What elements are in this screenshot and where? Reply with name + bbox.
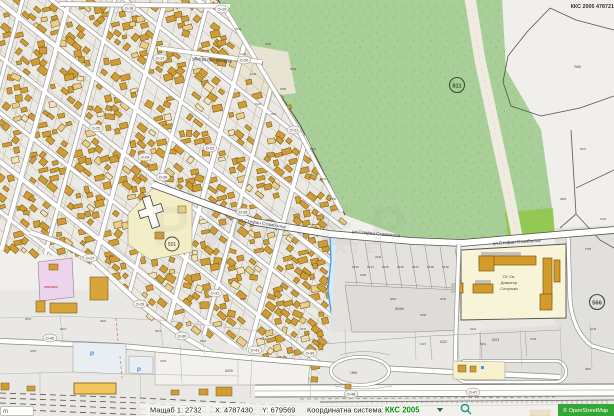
svg-text:4253: 4253 xyxy=(30,349,37,353)
svg-text:1107: 1107 xyxy=(420,342,426,346)
svg-text:О-25: О-25 xyxy=(92,125,101,130)
svg-text:О-26: О-26 xyxy=(159,174,168,179)
svg-text:5458: 5458 xyxy=(420,313,427,317)
svg-text:6216: 6216 xyxy=(397,265,404,269)
svg-text:X: 4787430: X: 4787430 xyxy=(215,406,253,415)
svg-text:гимназия: гимназия xyxy=(44,285,58,289)
svg-text:О-22: О-22 xyxy=(206,145,215,150)
svg-text:О-42: О-42 xyxy=(46,335,55,340)
svg-text:О-20: О-20 xyxy=(240,57,249,62)
svg-text:5842: 5842 xyxy=(320,177,327,181)
svg-text:4194: 4194 xyxy=(270,112,277,116)
svg-text:6125: 6125 xyxy=(600,217,607,221)
svg-text:О-27: О-27 xyxy=(86,255,95,260)
svg-text:О-24: О-24 xyxy=(141,154,150,159)
svg-text:2305: 2305 xyxy=(310,147,317,151)
svg-text:АТЕ: АТЕ xyxy=(335,240,382,257)
svg-text:© OpenStreetMap: © OpenStreetMap xyxy=(563,407,608,414)
svg-text:2242: 2242 xyxy=(250,72,257,76)
svg-text:О-21: О-21 xyxy=(290,127,299,132)
svg-text:6219: 6219 xyxy=(442,265,449,269)
svg-text:m: m xyxy=(3,409,8,415)
svg-text:ОУ Св.: ОУ Св. xyxy=(503,274,516,279)
svg-text:P: P xyxy=(90,352,94,358)
svg-text:4883: 4883 xyxy=(560,197,567,201)
svg-text:566: 566 xyxy=(592,301,602,307)
svg-text:6215: 6215 xyxy=(382,265,389,269)
svg-text:5512: 5512 xyxy=(155,329,162,333)
svg-text:Координатна система:: Координатна система: xyxy=(307,406,384,415)
svg-text:Солунски: Солунски xyxy=(500,286,518,291)
svg-text:6500: 6500 xyxy=(290,67,297,71)
svg-text:4030: 4030 xyxy=(440,297,447,301)
svg-text:5431: 5431 xyxy=(470,327,477,331)
svg-text:1969: 1969 xyxy=(350,371,357,375)
svg-text:2068: 2068 xyxy=(360,273,367,277)
svg-text:О-29: О-29 xyxy=(136,301,145,306)
svg-text:Димитър: Димитър xyxy=(501,280,518,285)
svg-text:О-30: О-30 xyxy=(178,333,187,338)
svg-text:6235: 6235 xyxy=(590,327,597,331)
svg-text:5502: 5502 xyxy=(200,339,207,343)
svg-text:3124: 3124 xyxy=(260,337,267,341)
svg-text:О-48: О-48 xyxy=(347,391,356,396)
svg-text:788: 788 xyxy=(574,64,581,69)
svg-text:4843: 4843 xyxy=(300,327,307,331)
svg-text:ККС 2005: ККС 2005 xyxy=(385,406,420,415)
svg-text:P: P xyxy=(137,368,141,374)
svg-text:ККС 2005 478721: ККС 2005 478721 xyxy=(571,4,614,10)
svg-text:2919: 2919 xyxy=(60,327,67,331)
svg-text:Y: 679569: Y: 679569 xyxy=(262,406,295,415)
svg-text:О-39: О-39 xyxy=(306,350,315,355)
svg-text:2570: 2570 xyxy=(25,317,32,321)
svg-text:5961: 5961 xyxy=(480,342,487,346)
svg-text:1124: 1124 xyxy=(240,52,246,56)
svg-text:6214: 6214 xyxy=(367,265,374,269)
svg-text:Мащаб 1: 2732: Мащаб 1: 2732 xyxy=(150,406,202,415)
svg-text:6223: 6223 xyxy=(492,338,499,342)
svg-text:5854: 5854 xyxy=(390,297,397,301)
svg-text:6029: 6029 xyxy=(225,369,233,373)
svg-text:6218: 6218 xyxy=(427,265,434,269)
svg-text:О-31: О-31 xyxy=(211,290,220,295)
svg-text:О-47: О-47 xyxy=(469,389,478,394)
svg-text:О-19: О-19 xyxy=(218,6,227,11)
svg-text:О-18: О-18 xyxy=(125,5,134,10)
svg-text:5947: 5947 xyxy=(580,147,587,151)
svg-text:4852: 4852 xyxy=(585,367,592,371)
svg-text:1524: 1524 xyxy=(255,102,262,106)
svg-text:О-17: О-17 xyxy=(156,55,165,60)
svg-text:6217: 6217 xyxy=(412,265,419,269)
svg-text:3084: 3084 xyxy=(395,306,405,311)
svg-text:6874: 6874 xyxy=(240,297,247,301)
svg-text:О-41: О-41 xyxy=(251,347,260,352)
svg-text:6200: 6200 xyxy=(265,42,272,46)
svg-text:6213: 6213 xyxy=(352,265,359,269)
svg-text:5758: 5758 xyxy=(585,247,592,251)
svg-text:5285: 5285 xyxy=(280,87,287,91)
svg-text:1536: 1536 xyxy=(530,337,537,341)
svg-text:2233: 2233 xyxy=(160,359,167,363)
svg-text:2899: 2899 xyxy=(235,27,242,31)
svg-text:811: 811 xyxy=(452,84,462,90)
svg-text:6222: 6222 xyxy=(440,340,447,344)
svg-text:4902: 4902 xyxy=(100,319,107,323)
